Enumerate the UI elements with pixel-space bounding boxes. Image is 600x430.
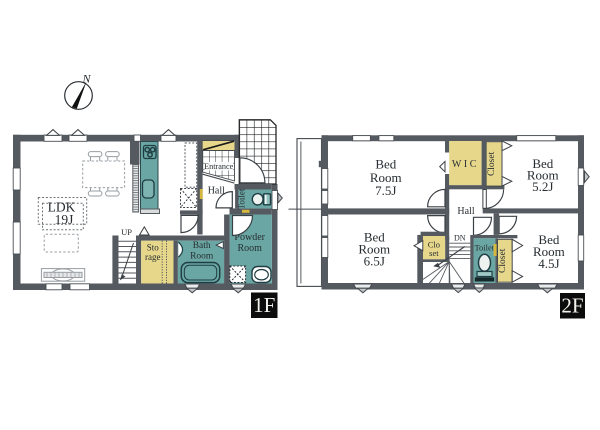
svg-text:WIC: WIC [452,159,479,170]
svg-text:Hall: Hall [457,206,474,217]
svg-text:19J: 19J [55,212,74,227]
svg-text:N: N [81,72,91,86]
svg-text:Sto: Sto [147,242,160,252]
svg-text:Room: Room [237,243,262,254]
svg-text:Toilet: Toilet [236,188,246,209]
svg-text:DN: DN [454,233,466,242]
svg-text:5.2J: 5.2J [532,179,553,194]
svg-text:6.5J: 6.5J [364,254,385,269]
svg-text:Closet: Closet [498,248,508,273]
svg-text:Bath: Bath [193,241,211,251]
svg-text:Hall: Hall [208,186,225,197]
svg-text:Closet: Closet [487,151,497,176]
svg-text:UP: UP [121,227,132,237]
svg-text:Room: Room [190,252,214,262]
svg-text:rage: rage [145,252,161,262]
svg-text:2F: 2F [561,294,583,318]
svg-text:4.5J: 4.5J [538,256,559,271]
svg-text:Toilet: Toilet [474,242,494,252]
svg-text:7.5J: 7.5J [375,183,396,198]
svg-text:Entrance: Entrance [204,162,233,171]
svg-text:1F: 1F [253,293,275,317]
svg-text:set: set [429,248,439,258]
